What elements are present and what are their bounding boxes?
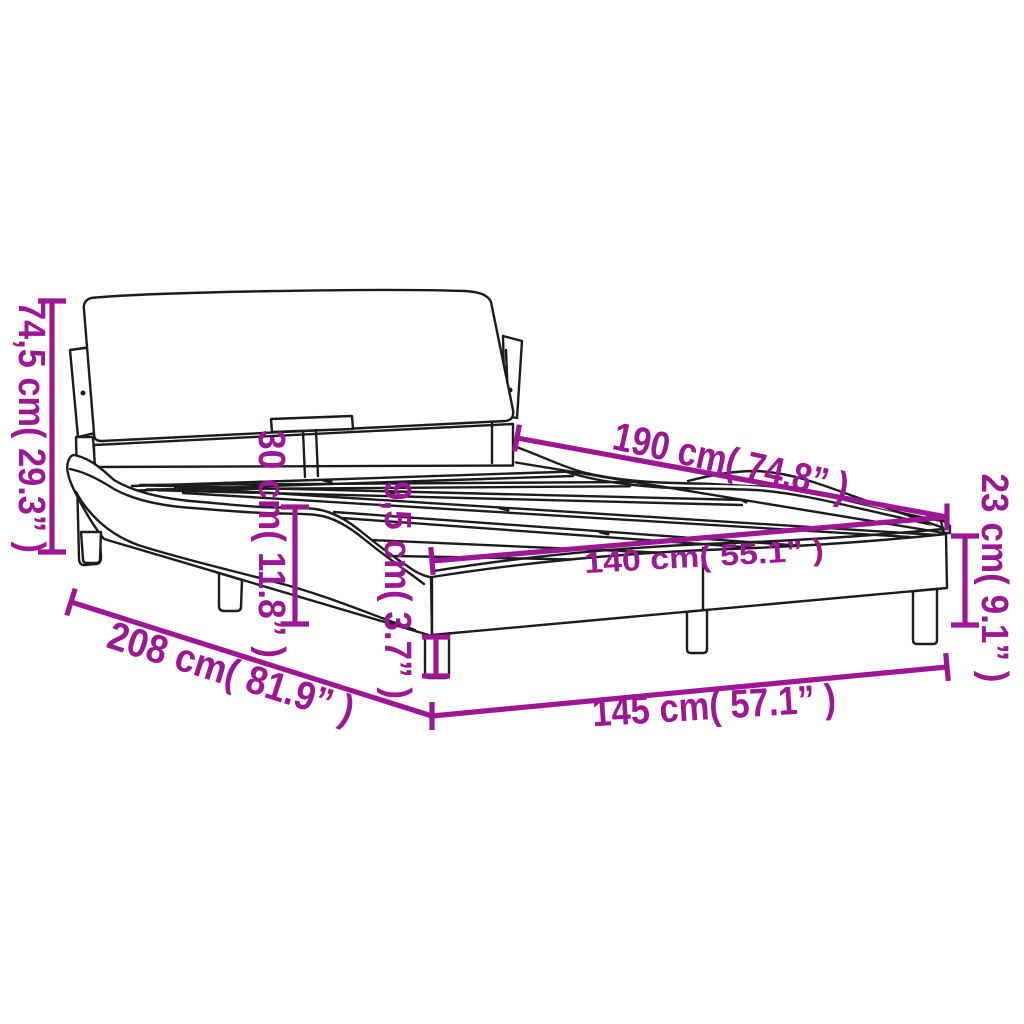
svg-text:23 cm( 9.1” ): 23 cm( 9.1” ) xyxy=(973,474,1015,683)
svg-text:145 cm( 57.1” ): 145 cm( 57.1” ) xyxy=(591,677,837,736)
svg-text:30 cm( 11.8” ): 30 cm( 11.8” ) xyxy=(250,430,292,658)
svg-text:74,5 cm( 29.3” ): 74,5 cm( 29.3” ) xyxy=(10,301,52,553)
svg-text:9,5 cm( 3.7” ): 9,5 cm( 3.7” ) xyxy=(376,481,418,699)
svg-text:208 cm( 81.9” ): 208 cm( 81.9” ) xyxy=(102,614,359,733)
